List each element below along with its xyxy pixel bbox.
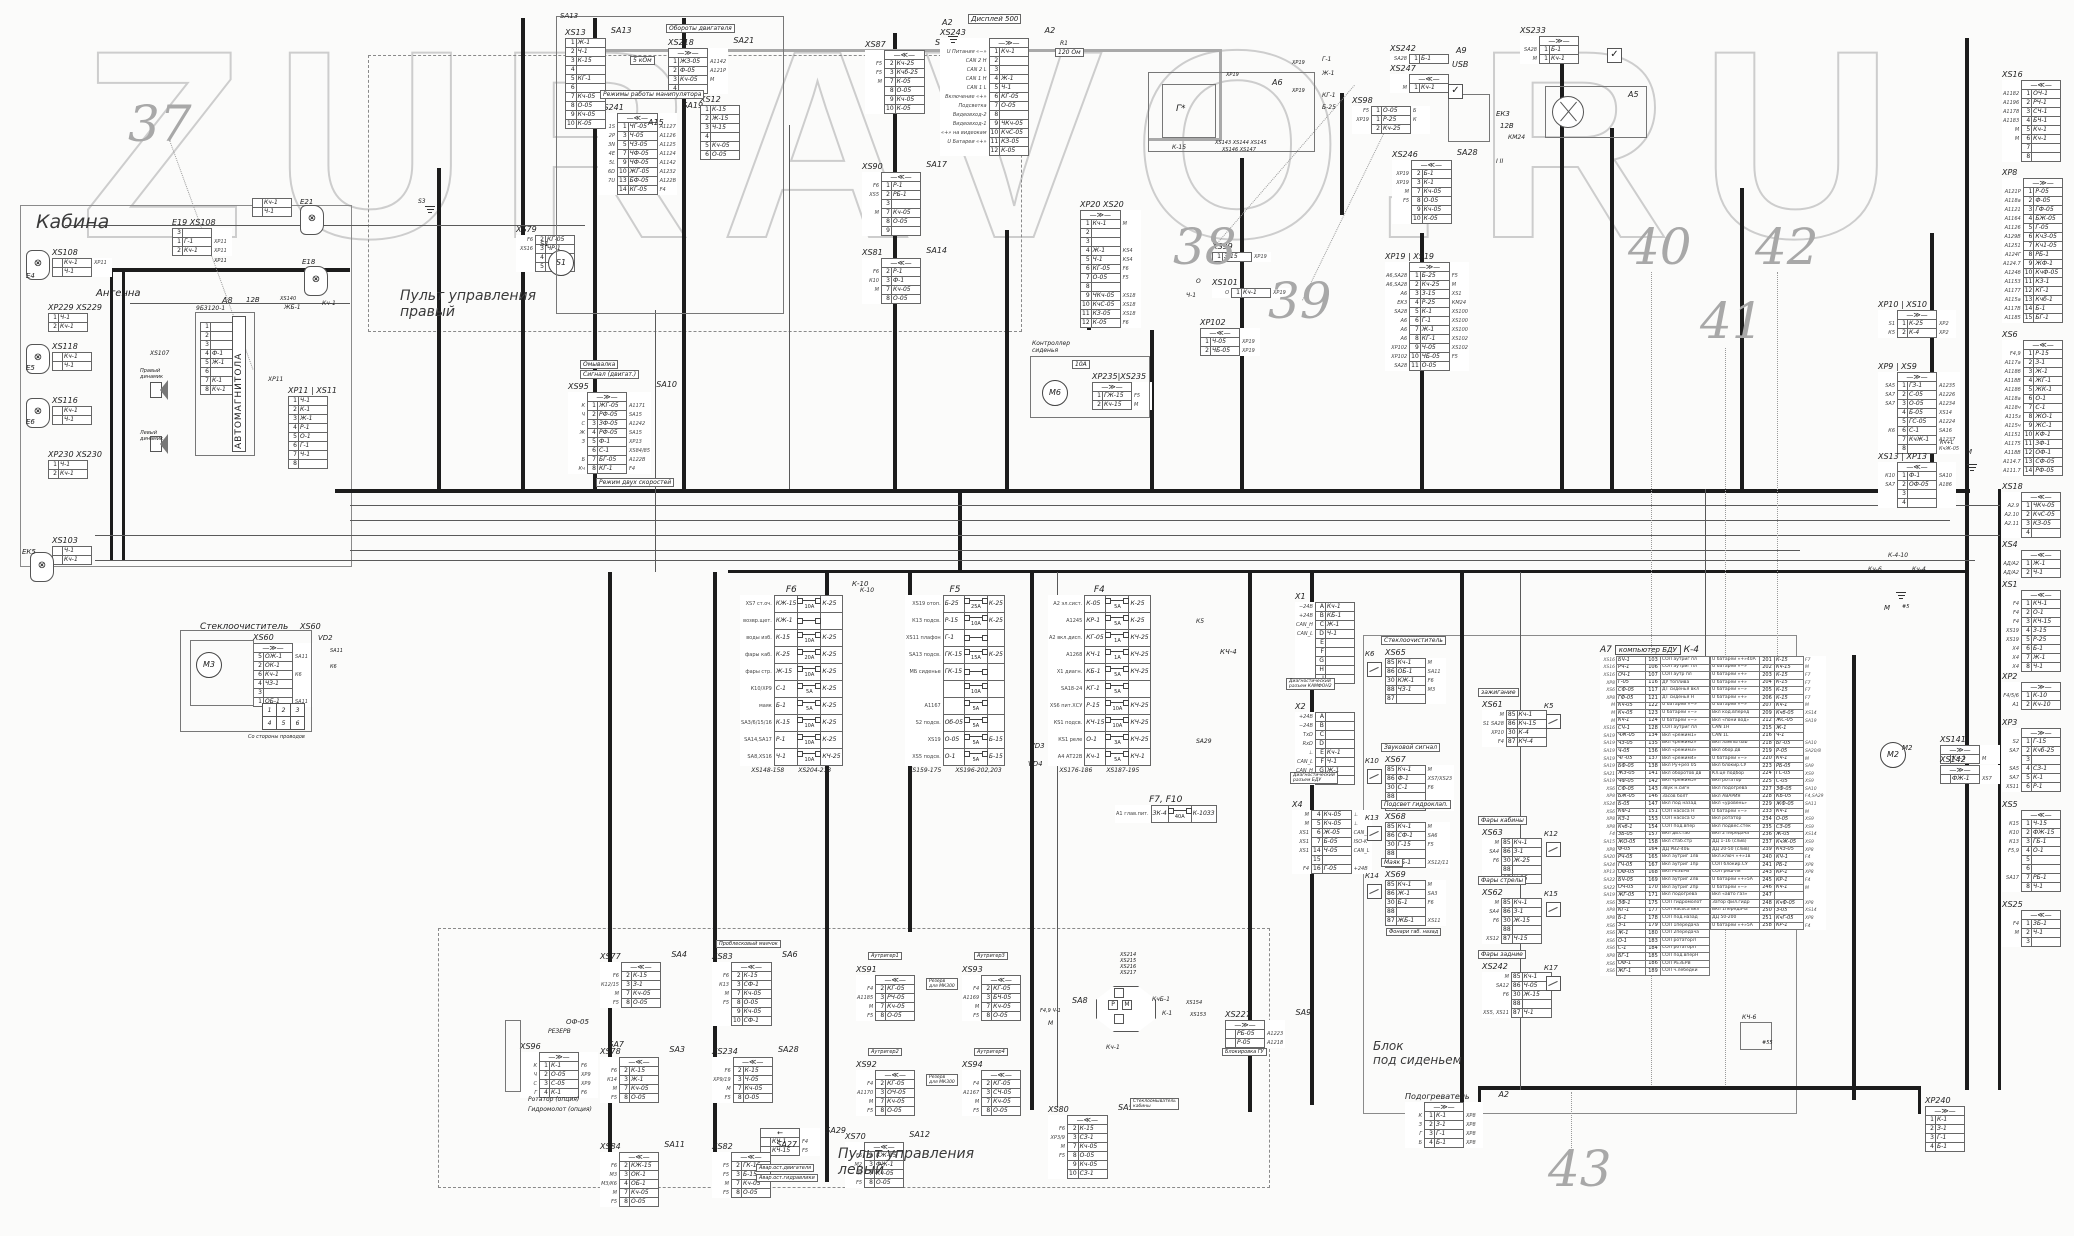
ground-icon bbox=[1966, 462, 1978, 471]
region-label-left-panel: Пульт управления левый bbox=[838, 1146, 974, 1178]
text-label: XS140 bbox=[280, 296, 296, 302]
joystick-contact bbox=[1114, 1014, 1124, 1024]
ground-icon bbox=[947, 34, 959, 43]
region-label-right-panel: Пульт управления правый bbox=[400, 288, 536, 320]
relay-caption-К12: Фары кабины bbox=[1478, 816, 1527, 825]
wire-thin bbox=[130, 303, 350, 304]
fuse-block-F5: F5XS19 отоп.Б-2525АК-25К13 подсв.Р-1510А… bbox=[905, 585, 1005, 774]
connector-block-XS84: XS84SA11—≪—F62КЖ-15М33ОК-1М3/К64ОБ-1М7Кч… bbox=[600, 1142, 659, 1207]
text-label: Г-1 bbox=[1322, 56, 1331, 63]
connector-block-XS83: XS83SA6—≪—F62К-15К133СФ-1М7Кч-05F58О-059… bbox=[712, 952, 772, 1026]
wire-thick bbox=[1460, 572, 1464, 1105]
relay-id-К6: К6 bbox=[1365, 650, 1374, 658]
connector-block-XS243: XS243А2—≫—U Питания «−»1Кч-1CAN 2 H2CAN … bbox=[940, 28, 1029, 156]
callout-37: 37 bbox=[128, 95, 192, 153]
wire-thin bbox=[350, 520, 1950, 521]
wire-thick bbox=[437, 168, 441, 489]
text-label: XS107 bbox=[150, 350, 169, 357]
text-label: Резерв для МК300 bbox=[926, 1074, 958, 1086]
wire-thick bbox=[1610, 128, 1614, 489]
text-label: Омывалка bbox=[580, 360, 618, 369]
text-label: XS146 XS147 bbox=[1222, 147, 1256, 153]
wire-thin bbox=[95, 560, 1975, 561]
lamp-icon: ⊗ bbox=[300, 205, 324, 235]
text-label: VD2 bbox=[318, 634, 333, 642]
component-outline bbox=[1448, 94, 1490, 142]
relay-caption-К10: Звуковой сигнал bbox=[1381, 743, 1440, 752]
relay-id-К10: К10 bbox=[1365, 757, 1379, 765]
wire-thick bbox=[728, 570, 1968, 573]
connector-block-ХР20-XS20: ХР20 XS20—≫—1Кч-1М234Ж-1КS45Ч-1КS46КГ-05… bbox=[1080, 200, 1141, 328]
callout-39: 39 bbox=[1268, 272, 1332, 330]
component-outline bbox=[505, 1020, 521, 1092]
connector-block-XS78: XS78SA3—≪—F62К-15К143Ж-1М7Кч-05F58О-05 bbox=[600, 1047, 659, 1103]
text-label: Со стороны проводов bbox=[248, 734, 305, 740]
connector-block-XS234: XS234SA28—≪—F62К-15ХР9/193Ч-05М7Кч-05F58… bbox=[712, 1047, 773, 1103]
connector-block-XS118: XS118Кч-1Ч-1 bbox=[52, 342, 92, 371]
text-label: Авар.ост.гидравлики bbox=[756, 1174, 818, 1182]
text-label: Авар.ост.двигателя bbox=[756, 1164, 814, 1172]
wire-thin bbox=[1705, 489, 1706, 660]
text-label: Кч-1 bbox=[322, 300, 336, 307]
fuse-block-F7-F10: F7, F10А1 глав.пит.ЗК-440АК-10ЗЗ bbox=[1115, 795, 1217, 823]
speaker-icon bbox=[150, 382, 162, 398]
relay-caption-К14: Маяк bbox=[1381, 858, 1403, 867]
relay-block-К6: XS6585Кч-1М86ОБ-1SA1130КЖ-1F688ЧЗ-1М387 bbox=[1385, 648, 1446, 704]
text-label: А2 bbox=[942, 18, 953, 27]
text-label: М bbox=[1884, 604, 1890, 612]
wire-thick bbox=[1852, 655, 1856, 1100]
check-icon: ✓ bbox=[1607, 48, 1622, 63]
wire-thin bbox=[350, 505, 2000, 506]
text-label: К6 bbox=[330, 664, 337, 670]
text-label: 10А bbox=[1072, 360, 1090, 369]
component-outline bbox=[1030, 356, 1150, 418]
relay-caption-К5: зажигание bbox=[1478, 688, 1519, 697]
text-label: КчБ-1 bbox=[1152, 996, 1170, 1003]
text-label: Е5 bbox=[26, 364, 35, 372]
region-label-seat-block: Блок под сиденьем bbox=[1373, 1040, 1462, 1068]
connector-block-ХР102: ХР102—≪—1Ч-05ХР192ЧБ-05ХР19 bbox=[1200, 318, 1260, 356]
text-label: Ж-1 bbox=[1322, 70, 1334, 77]
text-label: А9 bbox=[1456, 46, 1467, 55]
callout-41: 41 bbox=[1700, 292, 1764, 350]
relay-coil-icon-К14 bbox=[1367, 884, 1382, 899]
connector-block-XS16: XS16—≪—А11821ОЧ-1А11962РЧ-1А11783СЧ-1А11… bbox=[2002, 70, 2061, 162]
connector-block-XS96: XS96SA7—≫—К1К-1F6Ч2О-05ХР9С3С-05ХР9Г4К-1… bbox=[520, 1042, 598, 1098]
text-label: 12В bbox=[246, 296, 260, 304]
connector-block-ХР10-XS10: ХР10 | XS10—≫—S11К-25ХР2К52К-4ХР2 bbox=[1878, 300, 1956, 338]
text-label: ЕК5 bbox=[22, 548, 36, 556]
wire-thick bbox=[1918, 1086, 1921, 1114]
connector-block-XS108: XS108Кч-1ХР11Ч-1 bbox=[52, 248, 112, 277]
text-label: КЧ-4 bbox=[1220, 648, 1237, 656]
connector-block-XS242: XS242SA281Б-1 bbox=[1390, 44, 1449, 64]
region-label-cabin: Кабина bbox=[36, 212, 109, 234]
connector-block-XS227: XS227SA9—≫—РБ-05А1223Р-05А1218 bbox=[1225, 1010, 1285, 1048]
text-label: S1 bbox=[540, 240, 549, 248]
text-label: О bbox=[1196, 278, 1201, 285]
text-label: Антенна bbox=[96, 288, 141, 299]
text-label: Кч-6 bbox=[1868, 566, 1882, 573]
relay-block-К5: XS61М85Кч-1S1 SA2886Кч-15ХР1030К-4F487КЧ… bbox=[1482, 700, 1547, 747]
radio-vertical-label: АВТОМАГНИТОЛА bbox=[232, 316, 246, 452]
text-label: R1 bbox=[1060, 40, 1068, 47]
connector-block-Подогреватель: ПодогревательА2—≫—К1К-1ХР8З2З-1ХР8Г3Г-1Х… bbox=[1405, 1092, 1483, 1148]
connector-block-ХР240: ХР240—≫—1К-12З-13Г-14Б-1 bbox=[1925, 1096, 1965, 1152]
text-label: ХР11 bbox=[214, 258, 227, 264]
connector-block-XS1: XS1—≪—F41КЧ-1F42О-1F43КЧ-15XS194З-15XS19… bbox=[2002, 580, 2061, 672]
relay-id-К13: К13 bbox=[1365, 814, 1379, 822]
text-label: Б-25 bbox=[1322, 104, 1336, 111]
relay-coil-icon-К17 bbox=[1546, 976, 1561, 991]
relay-id-К5: К5 bbox=[1544, 702, 1553, 710]
connector-block-XS6: XS6—≪—F4,91Р-15А117а2З-1А118б3Ж-1А118В4Ж… bbox=[2002, 330, 2063, 476]
relay-caption-К6: Стеклоочиститель bbox=[1381, 636, 1446, 645]
ground-icon bbox=[1895, 590, 1907, 599]
text-label: Аутригер1 bbox=[868, 952, 902, 960]
controller-a7-block: А7 компьютер БДУ К-4XS16БЧ-1103СОЛ аутри… bbox=[1600, 645, 1826, 976]
text-label: S3 bbox=[418, 198, 426, 205]
connector-block-XS90: XS90SA17—≪—F61Р-1XS52РБ-13М7Кч-058О-059 bbox=[862, 162, 921, 236]
wire-thick bbox=[1965, 38, 1969, 1090]
text-label: А8 bbox=[222, 296, 233, 305]
text-label: Режим двух скоростей bbox=[596, 478, 674, 487]
text-label: 12В bbox=[1500, 122, 1514, 130]
text-label: ЖБ-1 bbox=[284, 304, 301, 311]
text-label: XS60 bbox=[300, 622, 321, 631]
text-label: Е18 bbox=[302, 258, 315, 266]
text-label: Аутригер4 bbox=[974, 1048, 1008, 1056]
text-label: #5 bbox=[1902, 604, 1909, 610]
text-label: А15 bbox=[648, 118, 664, 127]
connector-block-XS116: XS116Кч-1Ч-1 bbox=[52, 396, 92, 425]
component-outline bbox=[195, 312, 255, 456]
fuse-block-F6: F6XS7 ст.оч.КЖ-1510АК-25возвр.щет.КЖ-1во… bbox=[740, 585, 843, 774]
lamp-icon: ⊗ bbox=[304, 266, 328, 296]
text-label: I II bbox=[1496, 158, 1503, 165]
text-label: VD3 bbox=[1030, 742, 1045, 750]
text-label: Е4 bbox=[26, 272, 35, 280]
text-label: Стеклоочиститель bbox=[200, 622, 288, 632]
text-label: РЕЗЕРВ bbox=[548, 1028, 571, 1035]
connector-block-XS87: XS87SA1—≪—F52Кч-25F53Кчб-25М7К-058О-059К… bbox=[865, 40, 925, 114]
text-label: Обороты двигателя bbox=[666, 24, 735, 33]
connector-block-XS92: XS92—≪—F42КГ-05А11703ОЧ-05М7Кч-05F58О-05 bbox=[856, 1060, 915, 1116]
text-label: Г* bbox=[1176, 104, 1186, 114]
wire-thin bbox=[350, 550, 1800, 551]
text-label: Правый динамик bbox=[140, 368, 163, 380]
text-label: USB bbox=[1452, 60, 1468, 69]
text-label: XS143 XS144 XS145 bbox=[1215, 140, 1267, 146]
wire-thin bbox=[95, 535, 2000, 536]
connector-block-XS98: XS98F51О-05БХР191Р-25К2Кч-25 bbox=[1352, 96, 1430, 134]
relay-id-К17: К17 bbox=[1544, 964, 1558, 972]
text-label: К-15 bbox=[1172, 144, 1186, 151]
connector-block-XS103: XS103Ч-1Кч-1 bbox=[52, 536, 92, 565]
connector-block-ХР3: ХР3—≫—S21Г-15SA72Кчб-253SA54СЗ-1SA75К-1X… bbox=[2002, 718, 2061, 792]
text-label: А5 bbox=[1628, 90, 1639, 99]
relay-coil-icon-К15 bbox=[1546, 902, 1561, 917]
wire-thick bbox=[1340, 93, 1344, 215]
text-label: Е6 bbox=[26, 418, 35, 426]
relay-block-К15: XS62М85Кч-1SA486З-1F630Ж-1588XS1287Ч-15 bbox=[1482, 888, 1542, 944]
text-label: К-4-10 bbox=[1888, 552, 1908, 559]
connector-block-ХР8: ХР8—≫—А121Р1Р-05А118а2Ф-05А11213ГФ-05А11… bbox=[2002, 168, 2063, 323]
text-label: К5 bbox=[1196, 618, 1204, 625]
relay-caption-К17: Фары задние bbox=[1478, 950, 1526, 959]
connector-block-ХР229-XS229: ХР229 XS2291Ч-12Кч-1 bbox=[48, 303, 102, 332]
text-label: Резерв для МК300 bbox=[926, 978, 958, 990]
connector-block-x: Кч-1Ч-1 bbox=[252, 198, 292, 217]
text-label: Блокировка ГУ bbox=[1222, 1048, 1267, 1056]
text-label: SA8 bbox=[1072, 996, 1088, 1005]
text-label: Левый динамик bbox=[140, 430, 163, 442]
relay-caption-К13: Подсвет гидроклап. bbox=[1381, 800, 1451, 809]
text-label: Режимы работы манипулятора bbox=[600, 90, 704, 99]
wire-thick bbox=[1998, 489, 2001, 1090]
text-label: 120 Ом bbox=[1055, 48, 1084, 57]
connector-block-XS80: XS80SA5—≪—F62К-15ХР3/93СЗ-1М7Кч-05F58О-0… bbox=[1048, 1105, 1108, 1179]
check-icon: ✓ bbox=[1448, 84, 1463, 99]
text-label: М bbox=[1048, 1020, 1053, 1027]
callout-43: 43 bbox=[1548, 1140, 1612, 1198]
text-label: Контроллер сиденья bbox=[1032, 340, 1070, 354]
text-label: #55 bbox=[1762, 1040, 1773, 1046]
text-label: SA29 bbox=[1196, 738, 1212, 745]
ground-icon bbox=[424, 204, 436, 213]
connector-block-XS81: XS81SA14—≪—F62Р-1К103Ф-1М7Кч-058О-05 bbox=[862, 248, 921, 304]
relay-id-К14: К14 bbox=[1365, 872, 1379, 880]
text-label: Диагностический разъем КАМФОН2 bbox=[1286, 678, 1335, 690]
relay-block-К17: XS242М85Кч-1SA1286Ч-05F630Ж-1588XS5, XS1… bbox=[1482, 962, 1552, 1018]
relay-coil-icon-К10 bbox=[1367, 769, 1382, 784]
connector-block-XS5: XS5—≪—К151Ч-15К102ФЖ-15К133ГБ-1F5,94О-15… bbox=[2002, 800, 2061, 892]
text-label: Дисплей 500 bbox=[968, 14, 1021, 24]
text-label: Кч-4 bbox=[1912, 566, 1926, 573]
text-label: XS214 XS215 XS216 XS217 bbox=[1120, 952, 1136, 976]
wire-thin bbox=[789, 125, 790, 489]
text-label: Кч-1 bbox=[1106, 1044, 1120, 1051]
wiper-pin-grid: 123456 bbox=[262, 703, 305, 730]
text-label: Кч+L bbox=[1940, 440, 1953, 446]
text-label: КМ24 bbox=[1508, 134, 1525, 141]
relay-id-К12: К12 bbox=[1544, 830, 1558, 838]
text-label: ЕК3 bbox=[1496, 110, 1510, 118]
text-label: SA13 bbox=[560, 12, 578, 20]
text-label: М bbox=[1966, 448, 1972, 456]
text-label: КЧ-6 bbox=[1742, 1014, 1756, 1021]
text-label: ОФ-05 bbox=[566, 1018, 589, 1026]
connector-block-XS246: XS246SA28—≪—ХР192Б-1ХР193К-1М7Кч-05F58О-… bbox=[1392, 150, 1452, 224]
text-label: ХР11 bbox=[268, 376, 283, 383]
text-label: Аутригер2 bbox=[868, 1048, 902, 1056]
text-label: ХР19 bbox=[1226, 72, 1239, 78]
connector-block-XS93: XS93—≪—F42КГ-05А11693БЧ-05М7Кч-05F58О-05 bbox=[962, 965, 1021, 1021]
text-label: SA11 bbox=[330, 648, 343, 654]
text-label: Гидромолот (опция) bbox=[528, 1106, 592, 1113]
text-label: Ротатор (опция) bbox=[528, 1096, 579, 1103]
relay-coil-icon-К6 bbox=[1367, 662, 1382, 677]
component-outline bbox=[556, 16, 784, 314]
connector-block-ХР11-XS11: ХР11 | XS111Ч-12К-13Ж-14Р-15О-16Г-17Ч-18 bbox=[288, 386, 337, 469]
connector-block-XS94: XS94—≪—F42КГ-05А11673СЧ-05М7Кч-05F58О-05 bbox=[962, 1060, 1021, 1116]
callout-42: 42 bbox=[1755, 218, 1819, 276]
wiring-diagram-canvas: ZURAVO.RU КабинаПульт управления правыйП… bbox=[0, 0, 2074, 1236]
text-label: Ч-1 bbox=[1186, 292, 1196, 299]
text-label: XS153 bbox=[1190, 1012, 1206, 1018]
connector-block-XS247: XS247—≪—М1Кч-1 bbox=[1390, 64, 1449, 93]
wire-thick bbox=[122, 268, 125, 560]
text-label: Стеклоомыватель кабины bbox=[1130, 1098, 1179, 1110]
relay-coil-icon-К5 bbox=[1546, 714, 1561, 729]
text-label: 5 кОм bbox=[630, 56, 655, 65]
fuse-block-F4: F4А2 эл.сист.К-055АК-25А1245КР-15АК-25А2… bbox=[1048, 585, 1151, 774]
joystick-contact bbox=[1114, 988, 1124, 998]
connector-block-XS77: XS77SA4—≪—F62К-15К12/153З-1М7Кч-05F58О-0… bbox=[600, 952, 661, 1008]
lamp-icon: ⊗ bbox=[30, 552, 54, 582]
text-label: ХР19 bbox=[1292, 60, 1305, 66]
connector-block-XS142: XS142—≫—ФЖ-1XS7 bbox=[1940, 755, 2000, 784]
text-label: VD4 bbox=[1028, 760, 1043, 768]
connector-block-ХР19-XS19: ХР19 | XS19—≫—А6,SA281Б-25F5А6,SA282Кч-2… bbox=[1385, 252, 1469, 371]
text-label: А6 bbox=[1272, 78, 1283, 87]
connector-block-XS13-ХР13: XS13 | ХР13—≪—К101Ф-1SA10SA72ОФ-05А18634 bbox=[1878, 452, 1956, 508]
connector-block-X4: X4М4Кч-05⊥М5Кч-05⊥XS16Ж-05CAN_HXS17Б-05I… bbox=[1292, 800, 1372, 874]
wire-thin bbox=[655, 310, 656, 572]
relay-coil-icon-К13 bbox=[1367, 826, 1382, 841]
connector-block-XS4: XS4—≪—АД/А21Ж-1АД/А22Ч-1 bbox=[2002, 540, 2061, 578]
connector-block-XS25: XS25—≪—F41ЗБ-1М2Ч-13 bbox=[2002, 900, 2061, 947]
text-label: Фонари габ. назад bbox=[1386, 928, 1441, 936]
relay-block-К14: XS6985Кч-1М86Ж-1SA330Б-1F68887ЖБ-1XS11 bbox=[1385, 870, 1446, 926]
text-label: Сигнал (двигат.) bbox=[580, 370, 639, 379]
connector-block-ХР230-XS230: ХР230 XS2301Ч-12Кч-1 bbox=[48, 450, 102, 479]
text-label: XS154 bbox=[1186, 1000, 1202, 1006]
wire-thick bbox=[1005, 230, 1009, 489]
relay-coil-icon-К12 bbox=[1546, 842, 1561, 857]
fuse-side-label: К-10 bbox=[860, 587, 874, 594]
connector-block-ХР2: ХР2—≫—F4/5/61К-10А12Кч-10 bbox=[2002, 672, 2061, 710]
text-label: М2 bbox=[1902, 744, 1913, 752]
relay-caption-К15: Фары стрелы bbox=[1478, 876, 1526, 885]
callout-38: 38 bbox=[1173, 218, 1237, 276]
wire-thick bbox=[1030, 572, 1034, 1110]
text-label: 9Б3120-1 bbox=[196, 305, 225, 312]
connector-block-X1: X1−24ВAКч-1+24ВBКБ-1CAN_HCЖ-1CAN_LDЧ-1EF… bbox=[1295, 592, 1355, 684]
text-label: К-1 bbox=[1162, 1010, 1172, 1017]
wire-thin bbox=[65, 225, 585, 226]
joystick-contact: Р bbox=[1108, 1000, 1118, 1010]
callout-40: 40 bbox=[1628, 218, 1692, 276]
text-label: Проблесковый маячок bbox=[716, 940, 781, 948]
relay-id-К15: К15 bbox=[1544, 890, 1558, 898]
text-label: Е21 bbox=[300, 198, 313, 206]
connector-block-XS95: XS95SA10—≫—К1ЖГ-05А1171Ч2РФ-05SA15С3ЗФ-0… bbox=[568, 382, 651, 474]
connector-block-Е19-XS108: Е19 XS10831Г-1ХР112Кч-1ХР11 bbox=[172, 218, 232, 256]
connector-block-XS18: XS18—≪—А2.91ЧКч-05А2.102КчС-05А2.113КЗ-0… bbox=[2002, 482, 2061, 538]
text-label: F4,9 Ч-1 bbox=[1040, 1008, 1061, 1014]
text-label: Аутригер3 bbox=[974, 952, 1008, 960]
joystick-contact: М bbox=[1122, 1000, 1132, 1010]
wire-thick bbox=[110, 268, 113, 560]
text-label: К-10 bbox=[852, 580, 868, 588]
connector-block-XS233: XS233—≫—SA281Б-1М1Кч-1 bbox=[1520, 26, 1579, 64]
text-label: ХР19 bbox=[1292, 88, 1305, 94]
connector-block-XS91: XS91—≪—F42КГ-05А11853РЧ-05М7Кч-05F58О-05 bbox=[856, 965, 915, 1021]
text-label: Диагностический разъем БДУ bbox=[1290, 772, 1338, 784]
text-label: КГ-1 bbox=[1322, 92, 1336, 99]
